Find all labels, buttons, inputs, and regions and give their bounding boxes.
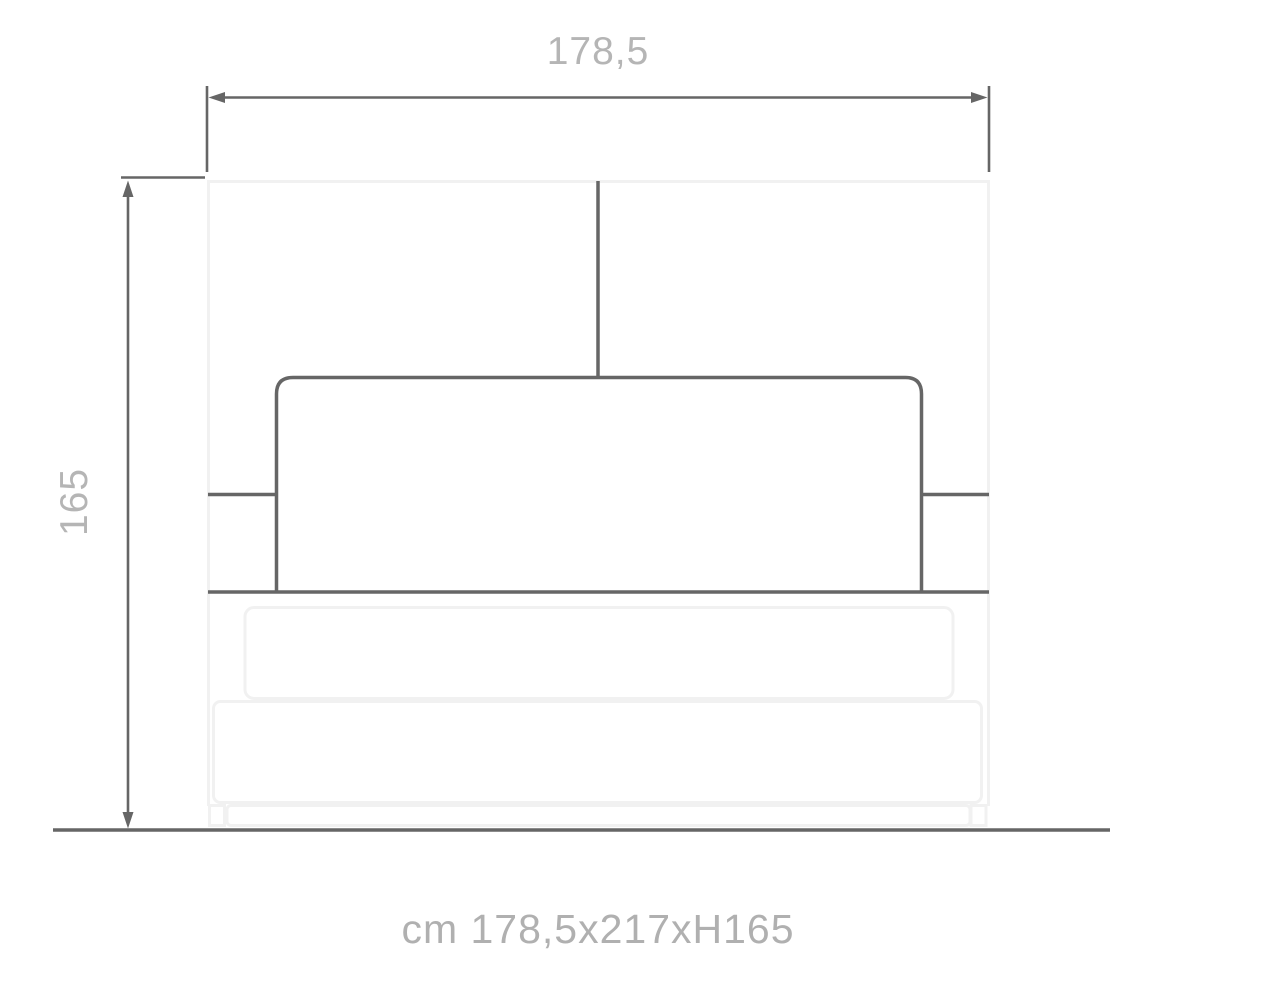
height-arrow-up-icon	[123, 181, 134, 198]
bed-dark-outlines	[53, 181, 1110, 830]
bottom-rail-outline	[227, 806, 970, 826]
height-dimension: 165	[53, 178, 205, 829]
headboard-outline	[277, 378, 922, 593]
mattress-outline	[245, 608, 953, 699]
width-arrow-left-icon	[209, 92, 226, 103]
height-dimension-label: 165	[53, 468, 96, 536]
width-dimension: 178,5	[207, 30, 989, 172]
dimensions-caption: cm 178,5x217xH165	[401, 906, 794, 952]
drawing-canvas: 178,5 165 cm 178,5x217xH165	[0, 0, 1261, 1000]
base-platform-outline	[214, 702, 982, 803]
left-leg-outline	[210, 806, 225, 826]
width-arrow-right-icon	[971, 92, 988, 103]
height-arrow-down-icon	[123, 812, 134, 829]
right-leg-outline	[971, 806, 986, 826]
bed-dimension-drawing: 178,5 165 cm 178,5x217xH165	[0, 0, 1261, 1000]
width-dimension-label: 178,5	[547, 30, 650, 73]
